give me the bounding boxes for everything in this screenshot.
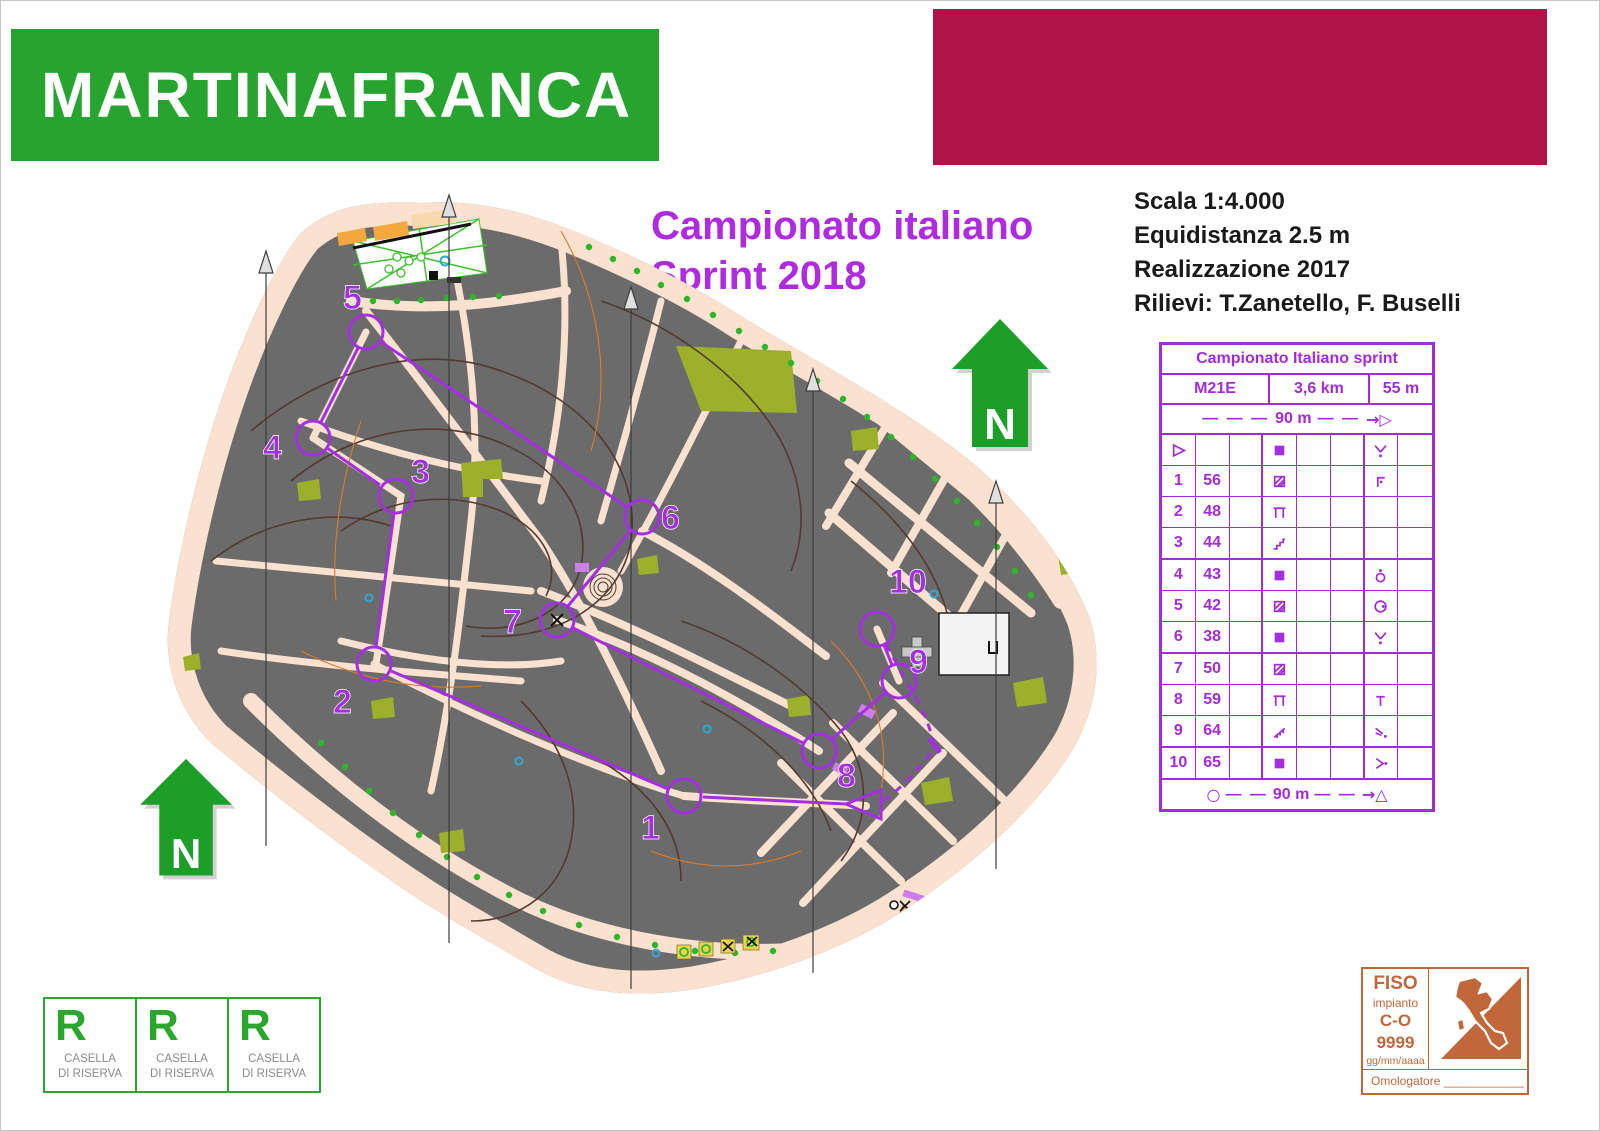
table-category-row: M21E 3,6 km 55 m: [1162, 375, 1432, 405]
symbol-ruin-icon: [1272, 693, 1287, 708]
symbol-junction-icon: [1373, 630, 1388, 645]
symbol-stairway-icon: [1272, 536, 1287, 551]
reserve-caption: CASELLA: [248, 1053, 300, 1065]
course-climb: 55 m: [1370, 375, 1432, 403]
start-distance-row: — — — 90 m — — →▷: [1162, 405, 1432, 435]
map-title: MARTINAFRANCA: [11, 58, 632, 132]
symbol-junction-icon: [1373, 443, 1388, 458]
north-label: N: [984, 400, 1016, 449]
symbol-ruin-icon: [1272, 505, 1287, 520]
tape-dashes: — —: [1314, 786, 1356, 804]
federation-name: FISO: [1363, 973, 1428, 995]
symbol-monument-icon: [1373, 568, 1388, 583]
tape-dashes: — —: [1225, 786, 1267, 804]
course-length: 3,6 km: [1270, 375, 1370, 403]
finish-distance: 90 m: [1273, 786, 1309, 804]
svg-text:8: 8: [837, 757, 856, 795]
reserve-caption: DI RISERVA: [58, 1068, 122, 1080]
reserve-caption: CASELLA: [156, 1053, 208, 1065]
north-label: N: [171, 830, 201, 877]
control-description-table: Campionato Italiano sprint M21E 3,6 km 5…: [1159, 342, 1435, 812]
symbol-well-icon: [1373, 599, 1388, 614]
control-row: 6 38: [1162, 622, 1432, 654]
reserve-box: R CASELLA DI RISERVA: [227, 997, 321, 1093]
reserve-letter: R: [147, 1001, 179, 1051]
svg-text:9: 9: [909, 643, 928, 681]
finish-row: ○ — — 90 m — — →△: [1162, 779, 1432, 809]
poster-page: MARTINAFRANCA Campionato italiano Sprint…: [0, 0, 1600, 1131]
symbol-canopy-icon: [1272, 662, 1287, 677]
approval-line1: impianto: [1363, 996, 1428, 1010]
svg-text:4: 4: [263, 429, 282, 467]
tape-dashes: — —: [1318, 410, 1360, 428]
category: M21E: [1162, 375, 1270, 403]
reserve-letter: R: [55, 1001, 87, 1051]
symbol-building-icon: [1272, 568, 1287, 583]
reserve-caption: CASELLA: [64, 1053, 116, 1065]
symbol-building-icon: [1272, 443, 1287, 458]
approval-line2: C-O: [1363, 1011, 1428, 1031]
svg-text:3: 3: [411, 453, 430, 491]
reserve-caption: DI RISERVA: [242, 1068, 306, 1080]
map-equidistance: Equidistanza 2.5 m: [1134, 219, 1461, 253]
symbol-canopy-icon: [1272, 599, 1287, 614]
reserve-letter: R: [239, 1001, 271, 1051]
map-realization: Realizzazione 2017: [1134, 253, 1461, 287]
svg-text:10: 10: [889, 563, 927, 601]
finish-circle-icon: ○: [1206, 785, 1220, 804]
svg-text:5: 5: [343, 279, 362, 317]
reserve-box: R CASELLA DI RISERVA: [135, 997, 229, 1093]
control-row: 4 43: [1162, 560, 1432, 591]
start-triangle-icon: [1171, 443, 1186, 458]
map-survey: Rilievi: T.Zanetello, F. Buselli: [1134, 287, 1461, 321]
control-row: 8 59: [1162, 685, 1432, 716]
north-arrow-top: N: [951, 317, 1051, 459]
control-row: 1 56: [1162, 466, 1432, 497]
symbol-building-icon: [1272, 756, 1287, 771]
control-row: 3 44: [1162, 528, 1432, 560]
reserve-box: R CASELLA DI RISERVA: [43, 997, 137, 1093]
svg-text:2: 2: [333, 683, 352, 721]
control-row: 2 48: [1162, 497, 1432, 528]
approval-date-placeholder: gg/mm/aaaa: [1363, 1055, 1428, 1067]
table-title: Campionato Italiano sprint: [1162, 345, 1432, 375]
arrow-finish-icon: →△: [1362, 785, 1388, 804]
fiso-logo: [1428, 969, 1527, 1069]
start-row: [1162, 435, 1432, 466]
control-row: 9 64: [1162, 716, 1432, 748]
symbol-tower-icon: [1373, 693, 1388, 708]
symbol-corner-icon: [1373, 474, 1388, 489]
symbol-ramp-icon: [1272, 724, 1287, 739]
map-title-banner: MARTINAFRANCA: [11, 29, 659, 161]
accent-banner: [933, 9, 1547, 165]
svg-text:7: 7: [503, 603, 522, 641]
approval-number: 9999: [1363, 1033, 1428, 1053]
reserve-caption: DI RISERVA: [150, 1068, 214, 1080]
fiso-approval-box: FISO impianto C-O 9999 gg/mm/aaaa Omolog…: [1361, 967, 1529, 1095]
approver-line: Omologatore ____________: [1363, 1070, 1527, 1088]
control-row: 5 42: [1162, 591, 1432, 622]
north-arrow-bottom: N: [139, 757, 235, 887]
symbol-spur-icon: [1373, 724, 1388, 739]
symbol-building-icon: [1272, 630, 1287, 645]
arrow-start-icon: →▷: [1366, 410, 1392, 429]
plaza: [583, 567, 623, 607]
symbol-canopy-icon: [1272, 474, 1287, 489]
map-scale: Scala 1:4.000: [1134, 185, 1461, 219]
italy-orienteering-logo-icon: [1429, 969, 1527, 1065]
control-row: 7 50: [1162, 654, 1432, 685]
reserve-boxes: R CASELLA DI RISERVA R CASELLA DI RISERV…: [43, 997, 319, 1093]
start-distance: 90 m: [1275, 410, 1311, 428]
control-row: 10 65: [1162, 748, 1432, 779]
map-info-block: Scala 1:4.000 Equidistanza 2.5 m Realizz…: [1134, 185, 1461, 321]
symbol-east-side-icon: [1373, 756, 1388, 771]
tape-dashes: — — —: [1202, 410, 1269, 428]
orienteering-map: 1 2 3 4 5 6 7 8 9 10: [141, 181, 1116, 1011]
svg-text:1: 1: [641, 809, 660, 847]
svg-text:6: 6: [661, 499, 680, 537]
